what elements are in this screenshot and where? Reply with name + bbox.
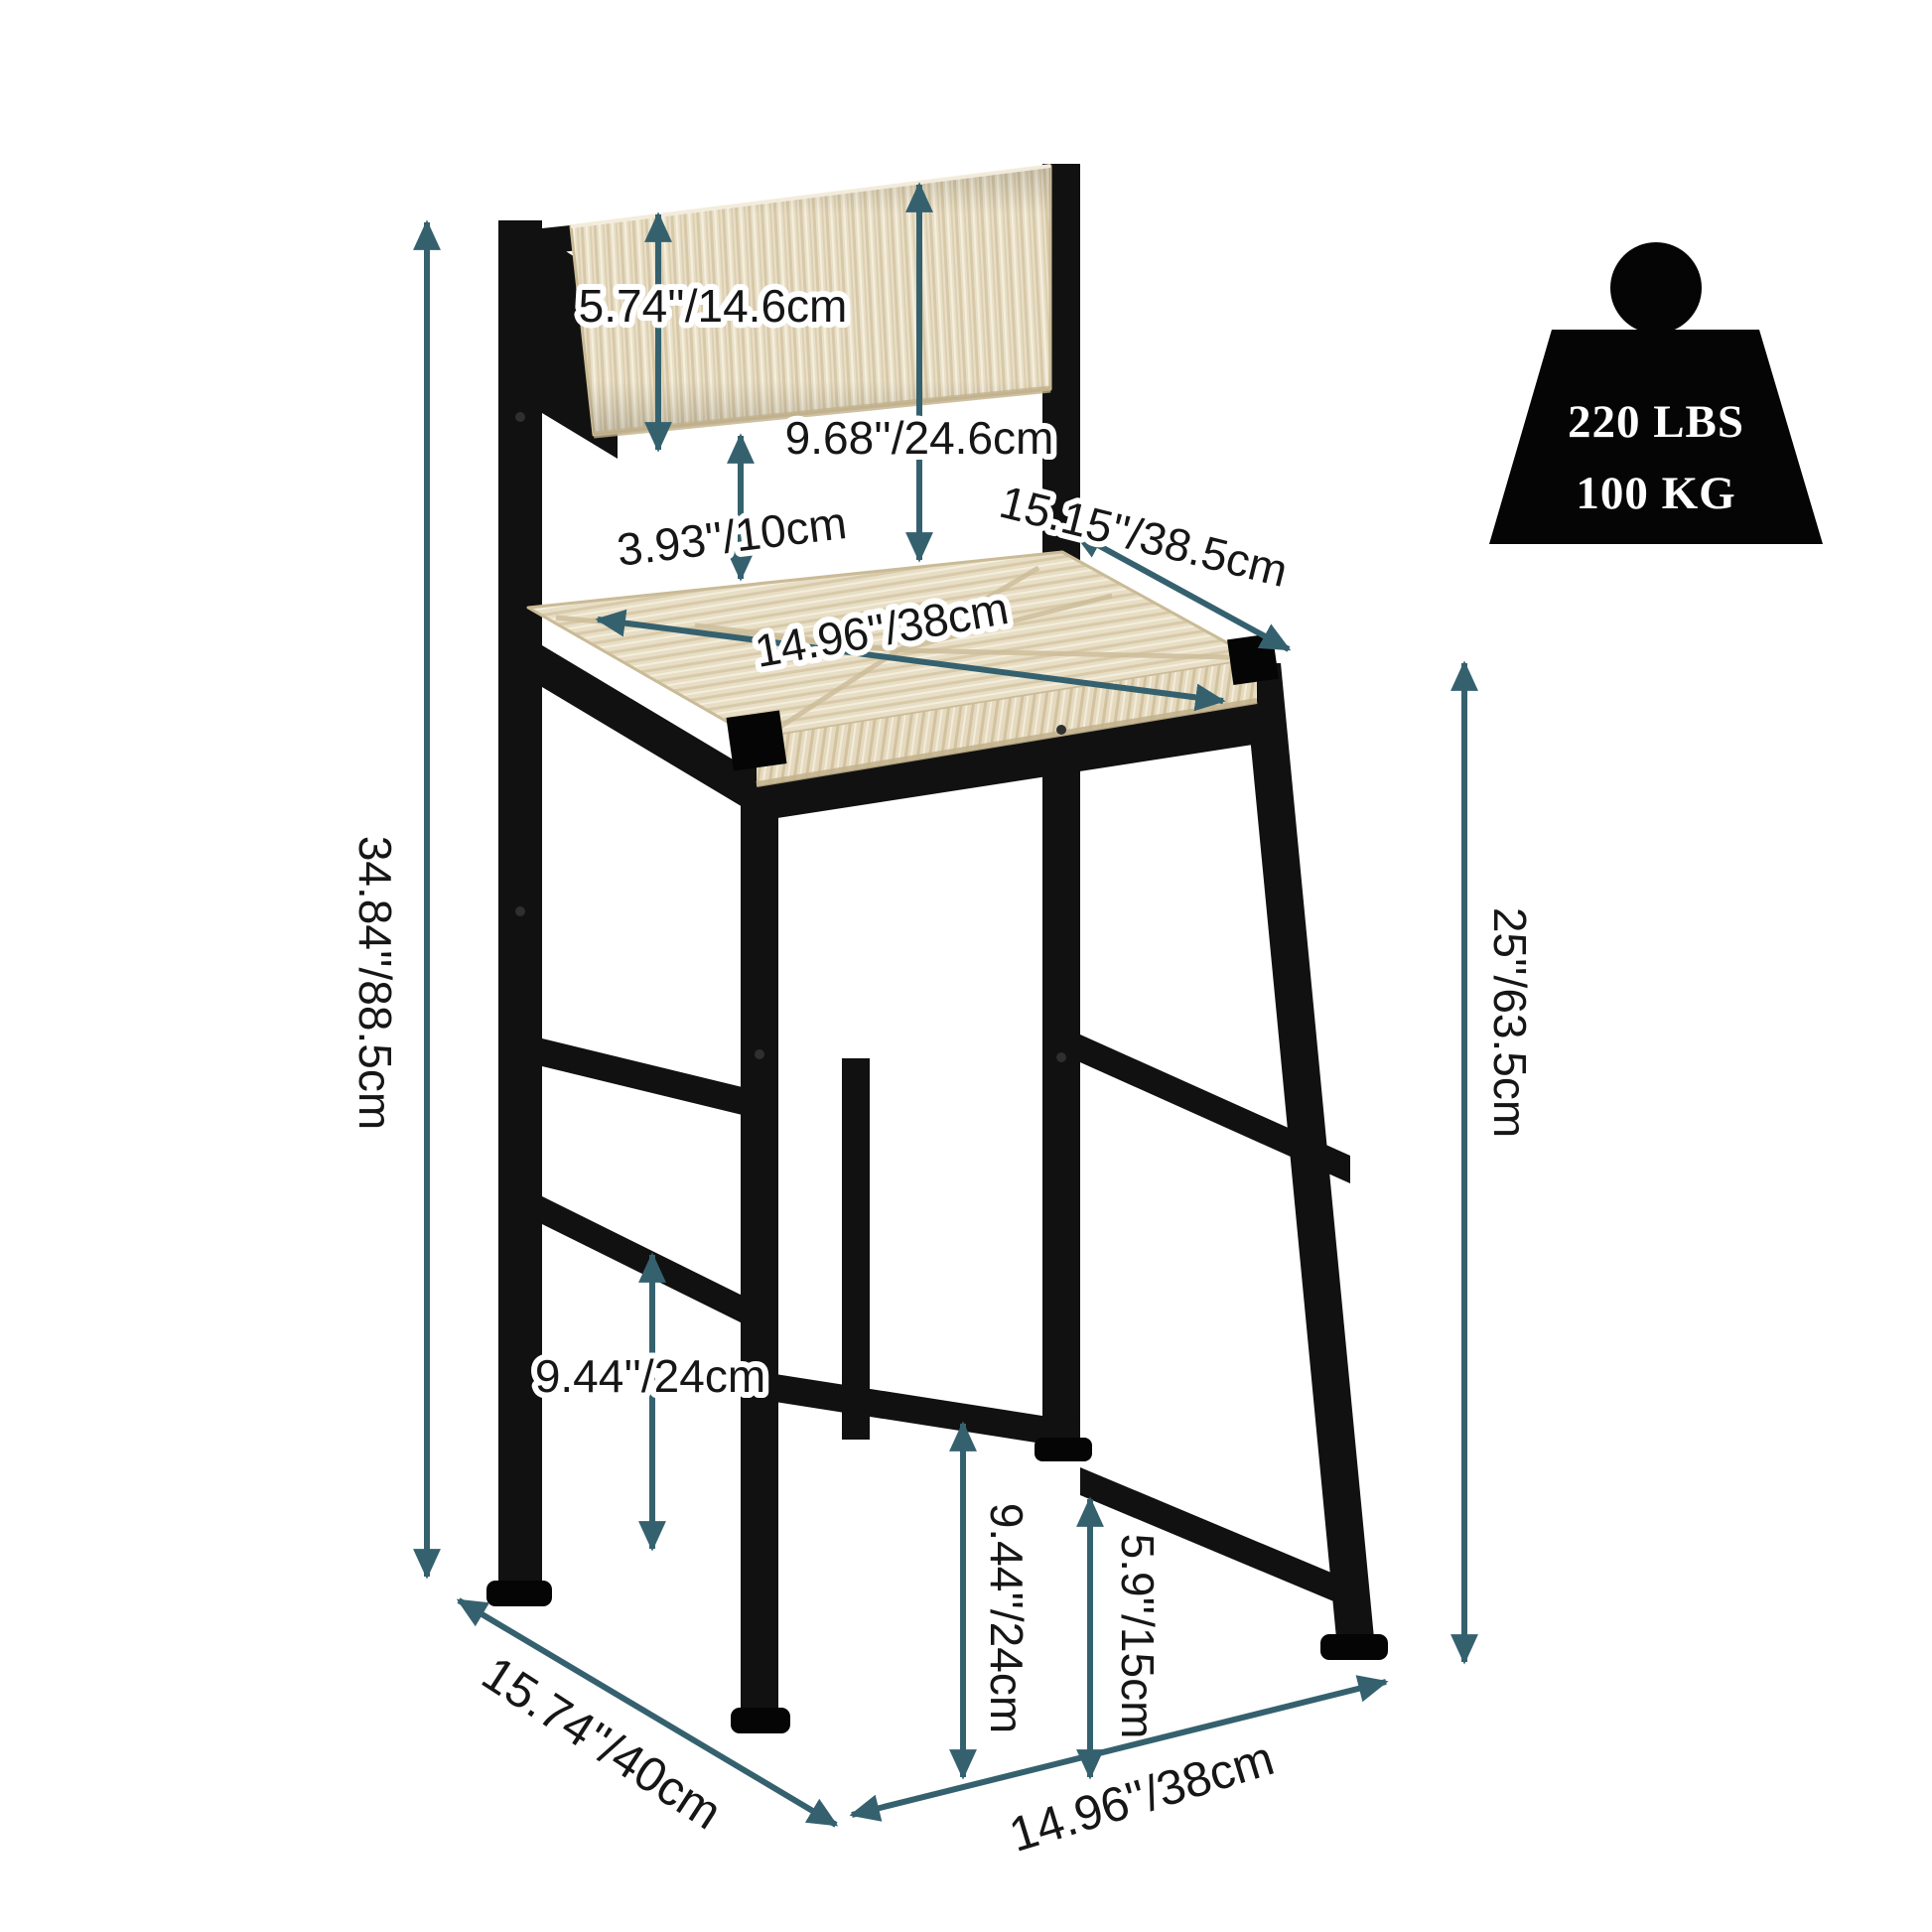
dim-label-lower-stretcher: 5.9''/15cm [1112, 1534, 1164, 1739]
bolt [1056, 725, 1066, 735]
dim-label-back-to-seat-gap: 3.93''/10cm [615, 496, 850, 576]
stool-cross-brace [762, 1372, 1080, 1449]
dim-label-backrest-height: 5.74''/14.6cm [579, 280, 848, 332]
dim-label-base-depth: 15.74''/40cm [473, 1647, 731, 1841]
dim-lower-stretcher: 5.9''/15cm [1090, 1499, 1164, 1777]
dim-seat-height: 25''/63.5cm [1464, 663, 1536, 1662]
bolt [515, 906, 525, 916]
stool-foot-front-left [731, 1708, 790, 1733]
dim-label-base-width: 14.96''/38cm [1004, 1731, 1281, 1863]
bolt [755, 1049, 764, 1059]
dim-label-footrest-left: 9.44''/24cm [535, 1350, 765, 1402]
dim-total-height: 34.84''/88.5cm [349, 222, 427, 1577]
dim-label-back-top-to-seat: 9.68''/24.6cm [785, 412, 1054, 464]
dim-label-seat-height: 25''/63.5cm [1484, 907, 1536, 1138]
weight-capacity-icon: 220 LBS 100 KG [1489, 242, 1823, 544]
stool-left-upper-stretcher [542, 1038, 762, 1120]
weight-capacity-lbs: 220 LBS [1568, 396, 1744, 448]
stool-dimension-diagram: 34.84''/88.5cm 5.74''/14.6cm 9.68''/24.6… [0, 0, 1932, 1932]
bolt [515, 412, 525, 422]
stool-foot-rear-right [1035, 1438, 1092, 1461]
diagram-canvas: 34.84''/88.5cm 5.74''/14.6cm 9.68''/24.6… [0, 0, 1932, 1932]
stool-foot-front-right [1320, 1634, 1388, 1660]
stool-illustration [486, 164, 1388, 1733]
bolt [1056, 1052, 1066, 1062]
dim-label-footrest-right: 9.44''/24cm [981, 1503, 1033, 1733]
stool-foot-rear-left [486, 1581, 552, 1606]
stool-front-support-post [842, 1058, 870, 1440]
seat-corner-cap-front-left [727, 711, 787, 771]
stool-front-left-leg [741, 739, 778, 1712]
weight-icon-handle [1610, 242, 1702, 334]
dim-label-total-height: 34.84''/88.5cm [349, 836, 401, 1130]
dim-footrest-right: 9.44''/24cm [963, 1424, 1033, 1777]
weight-capacity-kg: 100 KG [1576, 468, 1735, 519]
